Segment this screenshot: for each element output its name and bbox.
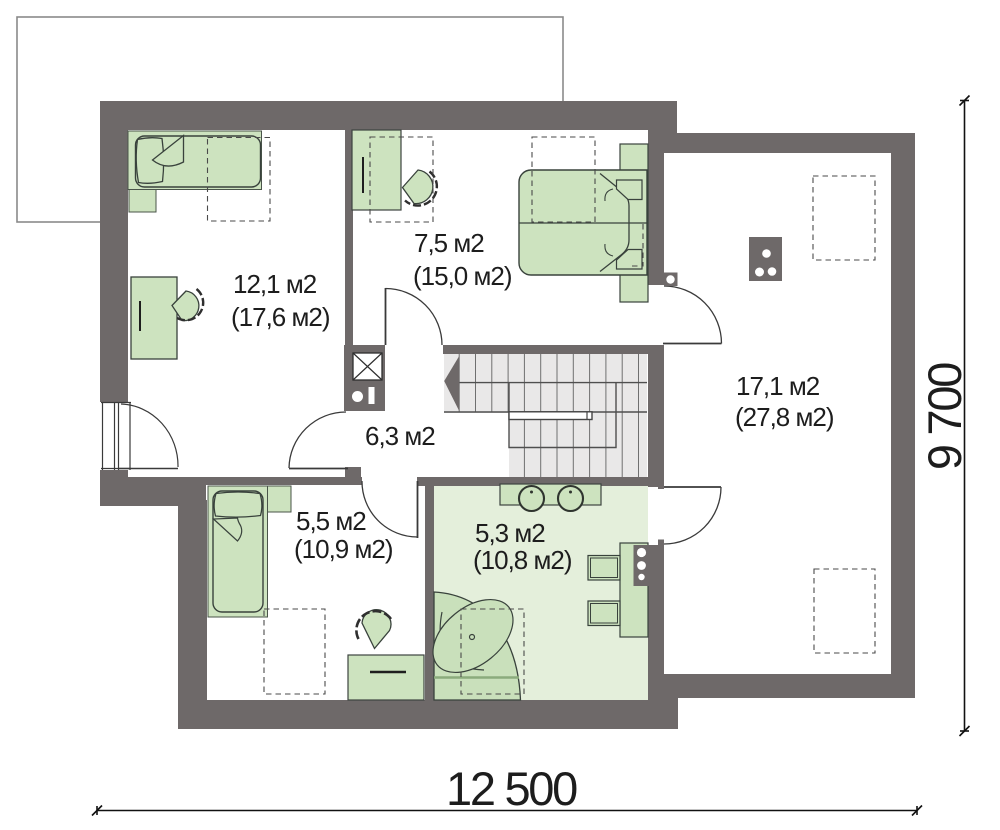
svg-text:(17,6 м2): (17,6 м2) [231, 302, 330, 332]
svg-text:5,5 м2: 5,5 м2 [296, 506, 366, 536]
svg-text:6,3 м2: 6,3 м2 [365, 421, 435, 451]
svg-text:5,3 м2: 5,3 м2 [475, 518, 545, 548]
svg-text:17,1 м2: 17,1 м2 [736, 371, 820, 401]
svg-text:(15,0 м2): (15,0 м2) [413, 261, 512, 291]
svg-text:9 700: 9 700 [918, 363, 971, 470]
svg-text:(27,8 м2): (27,8 м2) [735, 402, 834, 432]
svg-text:(10,8 м2): (10,8 м2) [473, 545, 572, 575]
svg-text:12 500: 12 500 [446, 762, 577, 815]
svg-text:(10,9 м2): (10,9 м2) [294, 534, 393, 564]
svg-text:7,5 м2: 7,5 м2 [414, 228, 484, 258]
svg-text:12,1 м2: 12,1 м2 [233, 269, 317, 299]
